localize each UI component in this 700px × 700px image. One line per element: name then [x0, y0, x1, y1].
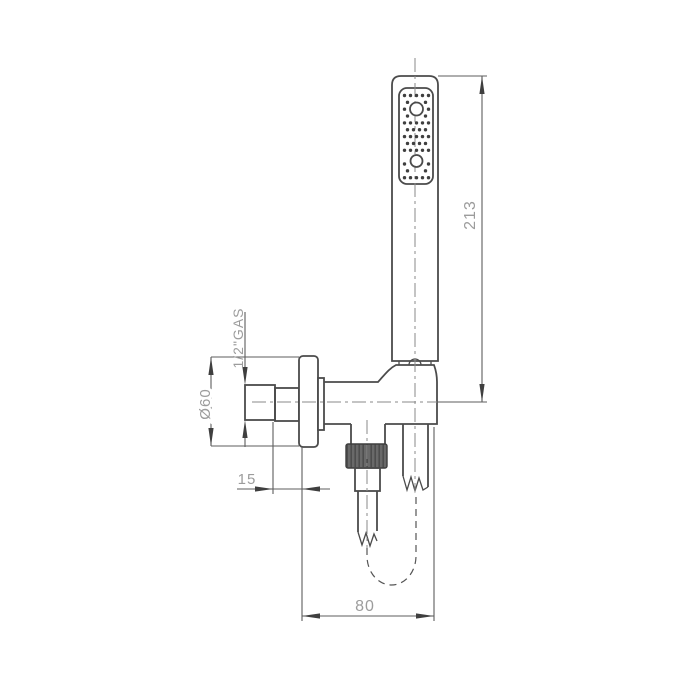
spray-dot	[406, 128, 409, 131]
dimension-label-80: 80	[355, 598, 375, 615]
outlet-boss	[351, 424, 385, 444]
spray-dot	[427, 121, 430, 124]
spray-dot	[418, 128, 421, 131]
arrowhead-down	[208, 428, 213, 446]
spray-dot	[403, 149, 406, 152]
spray-dot	[406, 169, 409, 172]
spray-dot	[415, 149, 418, 152]
spray-dot	[415, 94, 418, 97]
spray-dot	[412, 142, 415, 145]
spray-dot	[421, 94, 424, 97]
spray-dot	[427, 108, 430, 111]
technical-drawing: 213 Ø60 1/2"GAS 15 80	[0, 0, 700, 700]
spray-dot	[403, 162, 406, 165]
spray-dot	[403, 121, 406, 124]
spray-dot	[421, 121, 424, 124]
spray-center-hole-bottom	[411, 155, 423, 167]
spray-dot	[412, 128, 415, 131]
shower-technical-drawing-page: 213 Ø60 1/2"GAS 15 80	[0, 0, 700, 700]
arrowhead-right	[416, 613, 434, 618]
dimension-label-15: 15	[238, 471, 257, 488]
wall-outlet-holder	[299, 356, 437, 447]
centerlines	[252, 58, 482, 548]
wall-thread-connection	[245, 385, 299, 421]
spray-dot	[418, 142, 421, 145]
arrowhead-left	[302, 613, 320, 618]
spray-dot	[427, 162, 430, 165]
spray-dot	[424, 101, 427, 104]
arrowhead-left	[302, 486, 320, 491]
spray-dot	[424, 128, 427, 131]
dimension-thread: 1/2"GAS	[230, 308, 248, 448]
arrowhead-down	[242, 367, 247, 385]
spray-dot	[403, 135, 406, 138]
spray-dot	[409, 176, 412, 179]
arrowhead-down	[479, 384, 484, 402]
arrowhead-up	[208, 357, 213, 375]
spray-dot	[409, 135, 412, 138]
spray-dot	[403, 108, 406, 111]
spray-dot	[421, 149, 424, 152]
spray-dot	[415, 121, 418, 124]
spray-dot	[415, 135, 418, 138]
arrowhead-right	[255, 486, 273, 491]
spray-dot	[409, 94, 412, 97]
spray-dot	[424, 169, 427, 172]
hose-loop-dashed	[367, 492, 416, 585]
spray-dot	[409, 149, 412, 152]
spray-center-hole-top	[410, 103, 423, 116]
arrowhead-up	[479, 76, 484, 94]
spray-dot	[406, 142, 409, 145]
thread-square-flange	[275, 388, 299, 421]
hose-connection	[346, 424, 428, 585]
holder-body	[324, 365, 437, 424]
dimension-overall-height: 213	[437, 76, 487, 402]
dimension-label-thread: 1/2"GAS	[230, 308, 246, 369]
plate-flange	[318, 378, 324, 430]
spray-dot	[424, 114, 427, 117]
spray-dot	[415, 176, 418, 179]
spray-dot	[409, 121, 412, 124]
spray-dot	[403, 94, 406, 97]
spray-dot	[421, 135, 424, 138]
arrowhead-up	[242, 420, 247, 438]
spray-dot	[427, 94, 430, 97]
dimension-label-d60: Ø60	[197, 388, 214, 419]
spray-dot	[406, 101, 409, 104]
spray-dot	[424, 142, 427, 145]
spray-dot	[403, 176, 406, 179]
spray-dot	[406, 114, 409, 117]
spray-dot	[427, 149, 430, 152]
spray-dot	[427, 135, 430, 138]
spray-dot	[421, 176, 424, 179]
spray-dot	[427, 176, 430, 179]
dimension-label-213: 213	[462, 200, 479, 230]
